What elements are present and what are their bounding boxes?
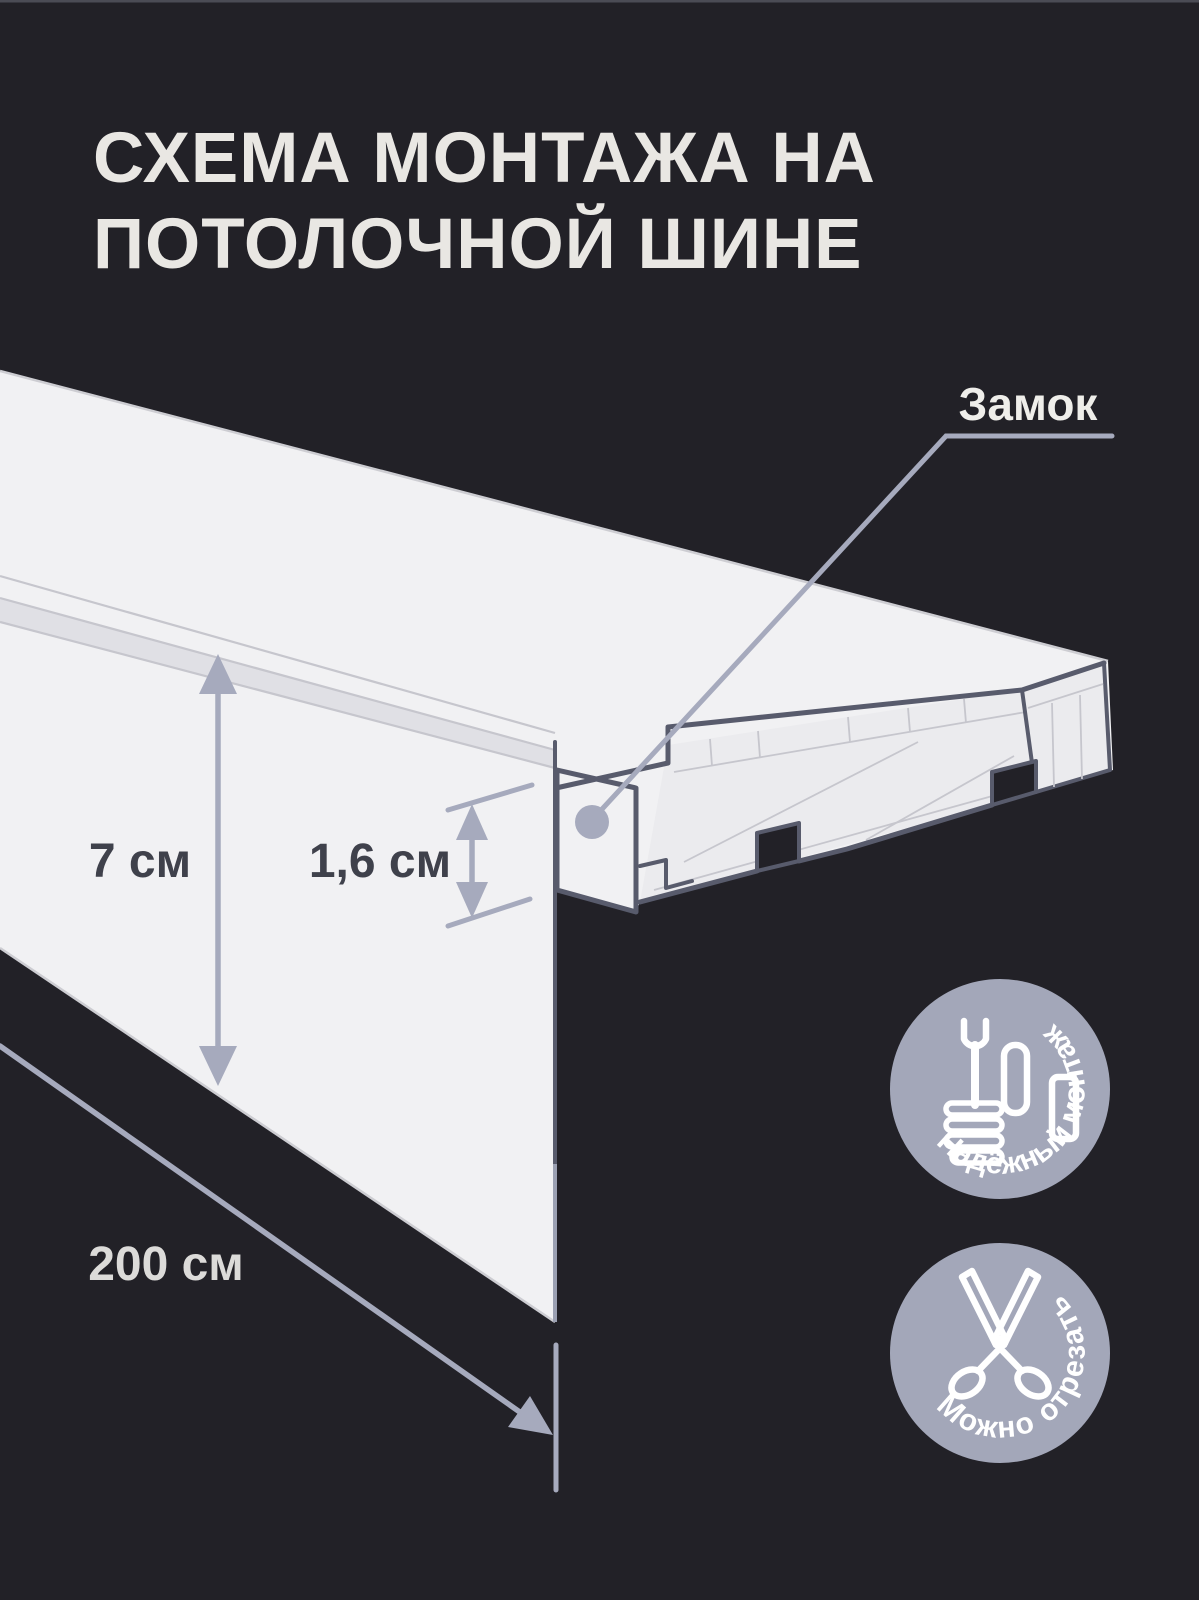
badge-reliable-mount: Надёжный монтаж (890, 979, 1110, 1199)
page-title-line1: СХЕМА МОНТАЖА НА (93, 116, 876, 202)
infographic-canvas: СХЕМА МОНТАЖА НА ПОТОЛОЧНОЙ ШИНЕ (0, 0, 1199, 1600)
arrow-diagonal-icon (508, 1396, 553, 1435)
badge-can-cut: Можно отрезать (890, 1243, 1110, 1463)
dimension-height-label: 7 см (89, 835, 191, 888)
page-title: СХЕМА МОНТАЖА НА ПОТОЛОЧНОЙ ШИНЕ (93, 116, 876, 288)
dimension-length-label: 200 см (88, 1238, 244, 1291)
top-hairline (0, 0, 1199, 3)
lock-callout-label: Замок (959, 378, 1099, 430)
page-title-line2: ПОТОЛОЧНОЙ ШИНЕ (93, 202, 876, 288)
dimension-profile-label: 1,6 см (309, 835, 451, 888)
glider-slot-left (757, 823, 799, 871)
